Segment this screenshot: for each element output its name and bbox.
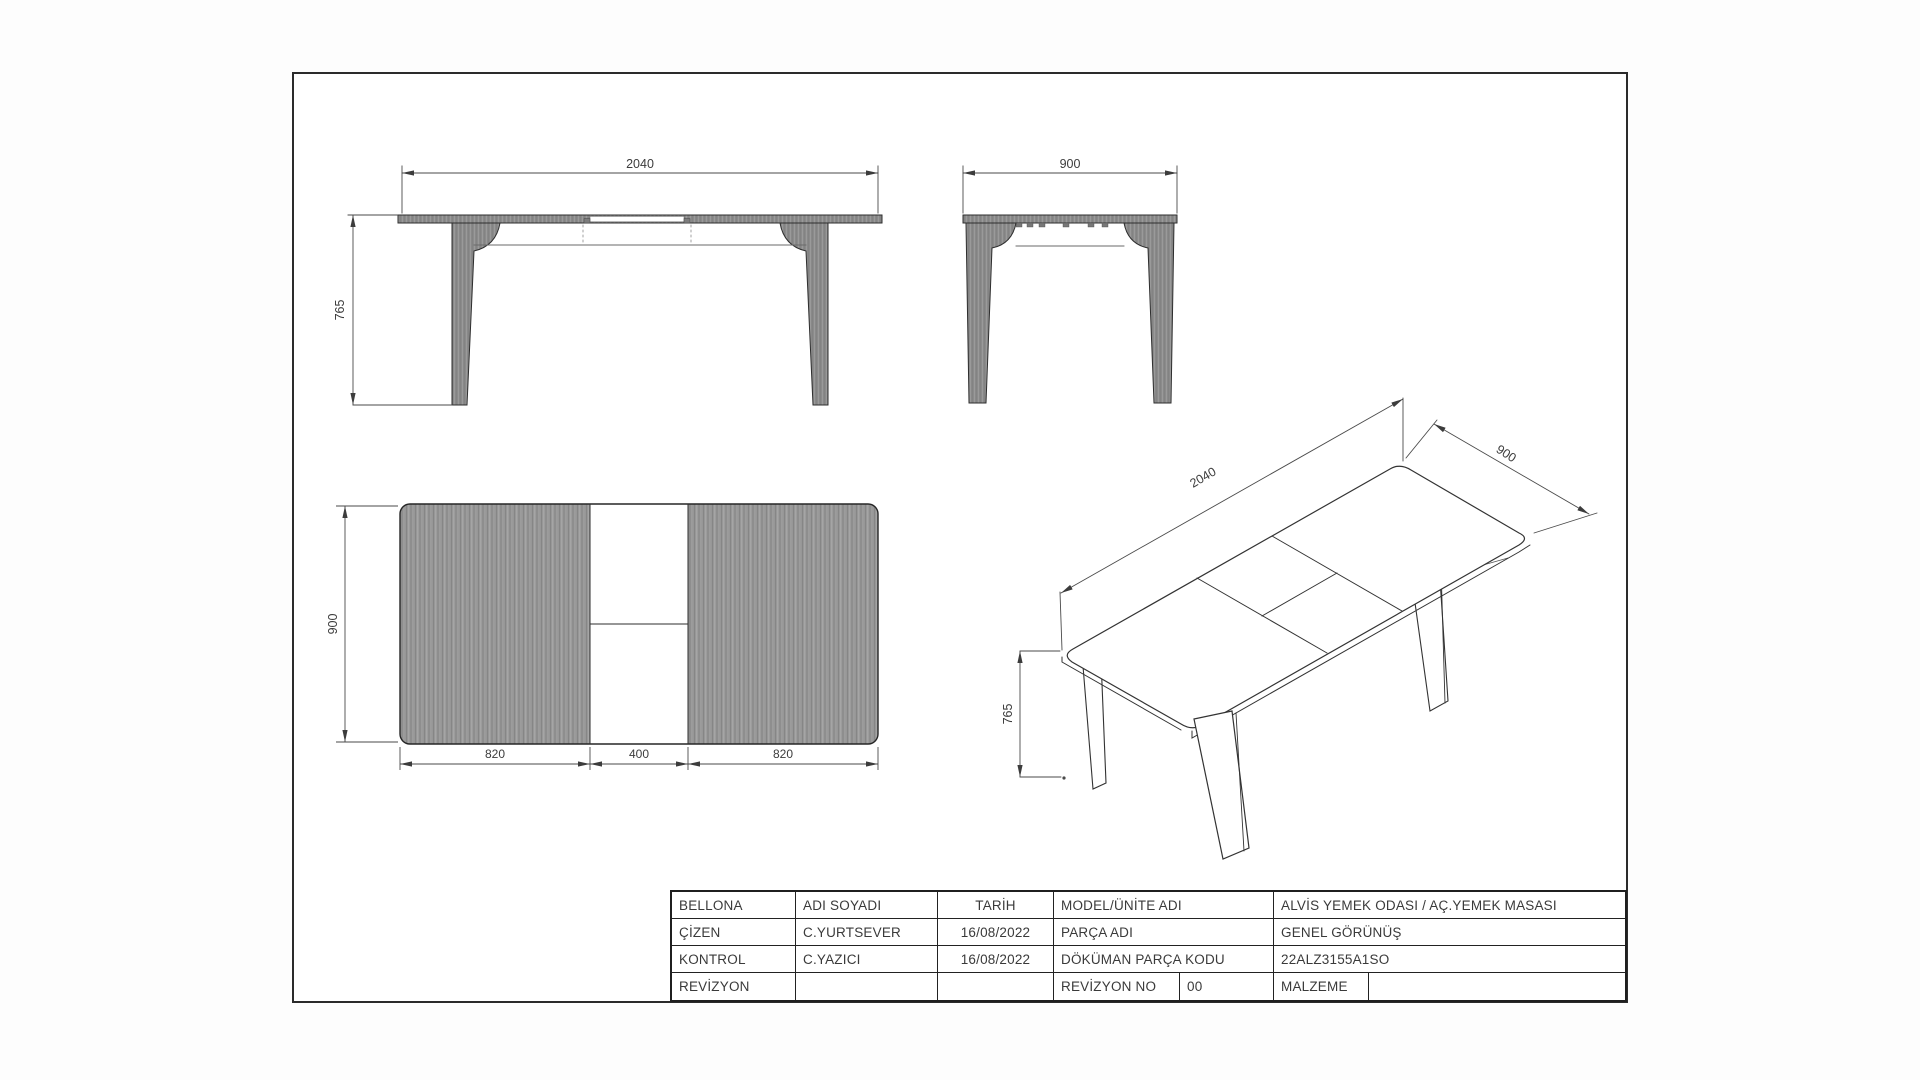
plan-seg-right-label: 820 — [773, 747, 793, 761]
leaf-latch-left — [584, 219, 590, 223]
front-width-label: 2040 — [626, 157, 654, 171]
revision-date-empty — [938, 973, 1054, 1000]
plan-right-panel — [688, 504, 878, 744]
model-unit-value: ALVİS YEMEK ODASI / AÇ.YEMEK MASASI — [1274, 892, 1625, 919]
drawn-by-label: ÇİZEN — [672, 919, 796, 946]
title-block-row-3: KONTROL C.YAZICI 16/08/2022 DÖKÜMAN PARÇ… — [672, 946, 1625, 973]
document-part-code-value: 22ALZ3155A1SO — [1274, 946, 1625, 973]
model-unit-label: MODEL/ÜNİTE ADI — [1054, 892, 1274, 919]
leaf-latch-right — [684, 219, 690, 223]
name-surname-header: ADI SOYADI — [796, 892, 938, 919]
part-name-label: PARÇA ADI — [1054, 919, 1274, 946]
plan-depth-label: 900 — [326, 614, 340, 635]
side-tabletop — [963, 215, 1177, 223]
checked-date: 16/08/2022 — [938, 946, 1054, 973]
company-name: BELLONA — [672, 892, 796, 919]
plan-left-panel — [400, 504, 590, 744]
plan-seg-mid-label: 400 — [629, 747, 649, 761]
checked-by-label: KONTROL — [672, 946, 796, 973]
title-block-row-2: ÇİZEN C.YURTSEVER 16/08/2022 PARÇA ADI G… — [672, 919, 1625, 946]
plan-seg-left-label: 820 — [485, 747, 505, 761]
drawing-sheet: 2040 765 900 — [0, 0, 1920, 1080]
title-block-row-1: BELLONA ADI SOYADI TARİH MODEL/ÜNİTE ADI… — [672, 892, 1625, 919]
material-value — [1369, 973, 1625, 1000]
part-name-value: GENEL GÖRÜNÜŞ — [1274, 919, 1625, 946]
title-block-row-4: REVİZYON REVİZYON NO 00 MALZEME — [672, 973, 1625, 1000]
revision-name-empty — [796, 973, 938, 1000]
side-width-label: 900 — [1060, 157, 1081, 171]
revision-no-label: REVİZYON NO — [1054, 973, 1180, 1000]
date-header: TARİH — [938, 892, 1054, 919]
document-part-code-label: DÖKÜMAN PARÇA KODU — [1054, 946, 1274, 973]
front-height-label: 765 — [333, 300, 347, 321]
revision-no-value: 00 — [1180, 973, 1274, 1000]
iso-height-label: 765 — [1001, 704, 1015, 725]
drawn-by-value: C.YURTSEVER — [796, 919, 938, 946]
checked-by-value: C.YAZICI — [796, 946, 938, 973]
revision-label: REVİZYON — [672, 973, 796, 1000]
material-label: MALZEME — [1274, 973, 1369, 1000]
title-block: BELLONA ADI SOYADI TARİH MODEL/ÜNİTE ADI… — [670, 890, 1627, 1002]
front-extension-leaf — [590, 216, 684, 221]
drawn-date: 16/08/2022 — [938, 919, 1054, 946]
